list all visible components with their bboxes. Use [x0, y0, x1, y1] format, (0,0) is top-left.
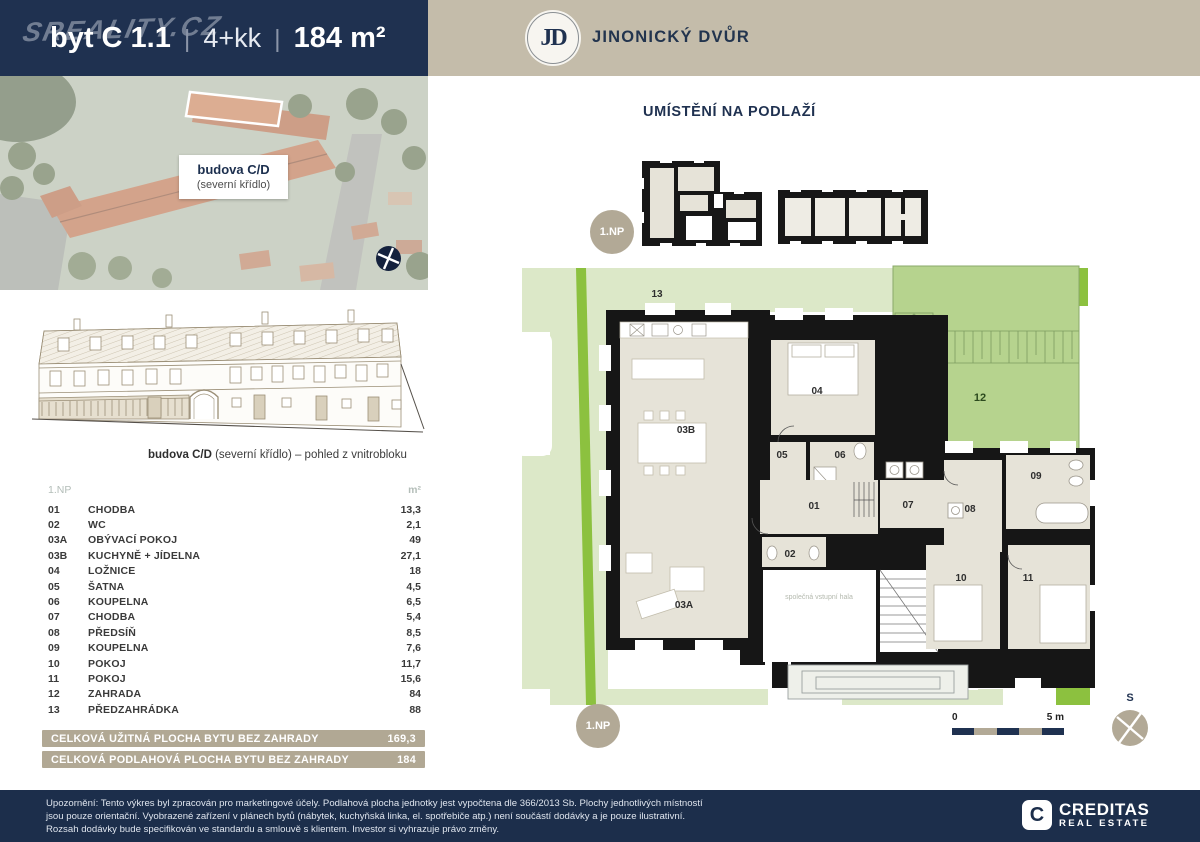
- table-row: 12ZAHRADA84: [48, 687, 421, 702]
- jd-logo-icon: JD: [527, 12, 579, 64]
- plan-label-06: 06: [834, 450, 846, 461]
- room-number: 13: [48, 704, 88, 716]
- total-label: CELKOVÁ UŽITNÁ PLOCHA BYTU BEZ ZAHRADY: [51, 733, 319, 745]
- overview-plans: [630, 150, 940, 255]
- room-number: 02: [48, 519, 88, 531]
- table-row: 13PŘEDZAHRÁDKA88: [48, 702, 421, 717]
- floor-badge-bottom: 1.NP: [576, 704, 620, 748]
- creditas-logo: C CREDITAS REAL ESTATE: [1022, 800, 1149, 830]
- plan-label-13: 13: [651, 289, 663, 300]
- room-number: 09: [48, 642, 88, 654]
- total-value: 184: [397, 754, 416, 766]
- plan-label-02: 02: [784, 549, 796, 560]
- room-area: 5,4: [375, 611, 421, 623]
- room-area: 7,6: [375, 642, 421, 654]
- table-row: 01CHODBA13,3: [48, 502, 421, 517]
- table-header: 1.NP m²: [48, 484, 421, 502]
- unit-area: 184 m²: [294, 22, 386, 55]
- table-row: 02WC2,1: [48, 517, 421, 532]
- plan-label-hall: společná vstupní hala: [785, 594, 853, 601]
- room-table: 1.NP m² 01CHODBA13,302WC2,103AOBÝVACÍ PO…: [48, 484, 421, 717]
- elevation-drawing: [30, 298, 425, 440]
- scale-end-label: 5 m: [1047, 712, 1064, 723]
- plan-label-04: 04: [811, 386, 823, 397]
- plan-label-07: 07: [902, 500, 914, 511]
- room-number: 08: [48, 627, 88, 639]
- plan-heading: UMÍSTĚNÍ NA PODLAŽÍ: [643, 104, 816, 120]
- plan-label-05: 05: [776, 450, 788, 461]
- room-area: 49: [375, 534, 421, 546]
- room-area: 88: [375, 704, 421, 716]
- plan-label-03a: 03A: [675, 600, 693, 611]
- scale-bar: 0 5 m: [952, 712, 1064, 735]
- scale-start-label: 0: [952, 712, 958, 723]
- creditas-wordmark: CREDITAS REAL ESTATE: [1059, 801, 1149, 829]
- total-label: CELKOVÁ PODLAHOVÁ PLOCHA BYTU BEZ ZAHRAD…: [51, 754, 349, 766]
- room-number: 10: [48, 658, 88, 670]
- plan-label-03b: 03B: [677, 425, 695, 436]
- room-name: POKOJ: [88, 673, 375, 685]
- room-name: POKOJ: [88, 658, 375, 670]
- elevation-caption: budova C/D (severní křídlo) – pohled z v…: [148, 449, 407, 461]
- table-row: 03AOBÝVACÍ POKOJ49: [48, 533, 421, 548]
- photo-label-title: budova C/D: [183, 162, 284, 177]
- unit-header: m²: [375, 484, 421, 502]
- creditas-logo-icon: C: [1022, 800, 1052, 830]
- room-area: 6,5: [375, 596, 421, 608]
- main-floor-plan: 13 12 03B 03A 04 05 06 01 02 07 08 09 10…: [520, 255, 1100, 705]
- brand-name: JINONICKÝ DVŮR: [592, 28, 750, 47]
- separator: |: [184, 25, 191, 54]
- floor-label: 1.NP: [48, 484, 88, 502]
- total-floor-area-bar: CELKOVÁ PODLAHOVÁ PLOCHA BYTU BEZ ZAHRAD…: [42, 751, 425, 768]
- table-row: 07CHODBA5,4: [48, 610, 421, 625]
- elevation-caption-rest: (severní křídlo) – pohled z vnitrobloku: [212, 449, 407, 461]
- room-number: 11: [48, 673, 88, 685]
- disclaimer: Upozornění: Tento výkres byl zpracován p…: [46, 797, 703, 837]
- room-name: CHODBA: [88, 504, 375, 516]
- room-name: KOUPELNA: [88, 596, 375, 608]
- total-usable-area-bar: CELKOVÁ UŽITNÁ PLOCHA BYTU BEZ ZAHRADY 1…: [42, 730, 425, 747]
- photo-label: budova C/D (severní křídlo): [179, 155, 288, 199]
- room-name: KUCHYNĚ + JÍDELNA: [88, 550, 375, 562]
- table-row: 08PŘEDSÍŇ8,5: [48, 625, 421, 640]
- room-name: CHODBA: [88, 611, 375, 623]
- room-name: WC: [88, 519, 375, 531]
- table-row: 03BKUCHYNĚ + JÍDELNA27,1: [48, 548, 421, 563]
- table-row: 04LOŽNICE18: [48, 564, 421, 579]
- table-row: 05ŠATNA4,5: [48, 579, 421, 594]
- table-row: 11POKOJ15,6: [48, 671, 421, 686]
- room-number: 05: [48, 581, 88, 593]
- table-row: 06KOUPELNA6,5: [48, 594, 421, 609]
- room-name: LOŽNICE: [88, 565, 375, 577]
- footer: Upozornění: Tento výkres byl zpracován p…: [0, 790, 1200, 842]
- room-name: KOUPELNA: [88, 642, 375, 654]
- room-name: ZAHRADA: [88, 688, 375, 700]
- room-table-rows: 01CHODBA13,302WC2,103AOBÝVACÍ POKOJ4903B…: [48, 502, 421, 717]
- room-number: 03B: [48, 550, 88, 562]
- elevation-caption-bold: budova C/D: [148, 449, 212, 461]
- room-number: 12: [48, 688, 88, 700]
- aerial-photo: budova C/D (severní křídlo): [0, 76, 428, 290]
- separator: |: [274, 25, 281, 54]
- room-area: 8,5: [375, 627, 421, 639]
- plan-label-10: 10: [955, 573, 967, 584]
- crosshair-icon: [375, 245, 402, 272]
- plan-label-08: 08: [964, 504, 976, 515]
- total-value: 169,3: [387, 733, 416, 745]
- room-area: 4,5: [375, 581, 421, 593]
- plan-label-11: 11: [1023, 573, 1034, 584]
- compass-icon: [1109, 707, 1151, 749]
- room-number: 03A: [48, 534, 88, 546]
- unit-disposition: 4+kk: [203, 23, 261, 54]
- compass-label: S: [1108, 692, 1152, 704]
- room-area: 15,6: [375, 673, 421, 685]
- disclaimer-line: Upozornění: Tento výkres byl zpracován p…: [46, 797, 703, 810]
- room-area: 27,1: [375, 550, 421, 562]
- plan-label-09: 09: [1030, 471, 1042, 482]
- room-area: 13,3: [375, 504, 421, 516]
- room-number: 06: [48, 596, 88, 608]
- room-name: PŘEDZAHRÁDKA: [88, 704, 375, 716]
- room-area: 18: [375, 565, 421, 577]
- room-number: 01: [48, 504, 88, 516]
- disclaimer-line: jsou pouze orientační. Vyobrazené zaříze…: [46, 810, 703, 823]
- photo-label-subtitle: (severní křídlo): [183, 179, 284, 191]
- room-name: PŘEDSÍŇ: [88, 627, 375, 639]
- room-area: 2,1: [375, 519, 421, 531]
- room-number: 04: [48, 565, 88, 577]
- room-name: ŠATNA: [88, 581, 375, 593]
- table-row: 10POKOJ11,7: [48, 656, 421, 671]
- compass: S: [1108, 692, 1152, 754]
- creditas-title: CREDITAS: [1059, 801, 1149, 818]
- plan-label-01: 01: [808, 501, 820, 512]
- room-area: 84: [375, 688, 421, 700]
- page: SREALITY.CZ byt C 1.1 | 4+kk | 184 m² JD…: [0, 0, 1200, 842]
- creditas-subtitle: REAL ESTATE: [1059, 818, 1149, 829]
- jd-initials: JD: [540, 25, 565, 52]
- room-area: 11,7: [375, 658, 421, 670]
- header-bar: SREALITY.CZ byt C 1.1 | 4+kk | 184 m²: [0, 0, 428, 76]
- floor-badge-top: 1.NP: [590, 210, 634, 254]
- disclaimer-line: Rozsah dodávky bude specifikován ve stan…: [46, 823, 703, 836]
- plan-label-12: 12: [974, 392, 986, 404]
- scale-segments: [952, 728, 1064, 735]
- page-title: byt C 1.1 | 4+kk | 184 m²: [50, 22, 386, 55]
- unit-name: byt C 1.1: [50, 22, 171, 55]
- room-name: OBÝVACÍ POKOJ: [88, 534, 375, 546]
- room-number: 07: [48, 611, 88, 623]
- table-row: 09KOUPELNA7,6: [48, 641, 421, 656]
